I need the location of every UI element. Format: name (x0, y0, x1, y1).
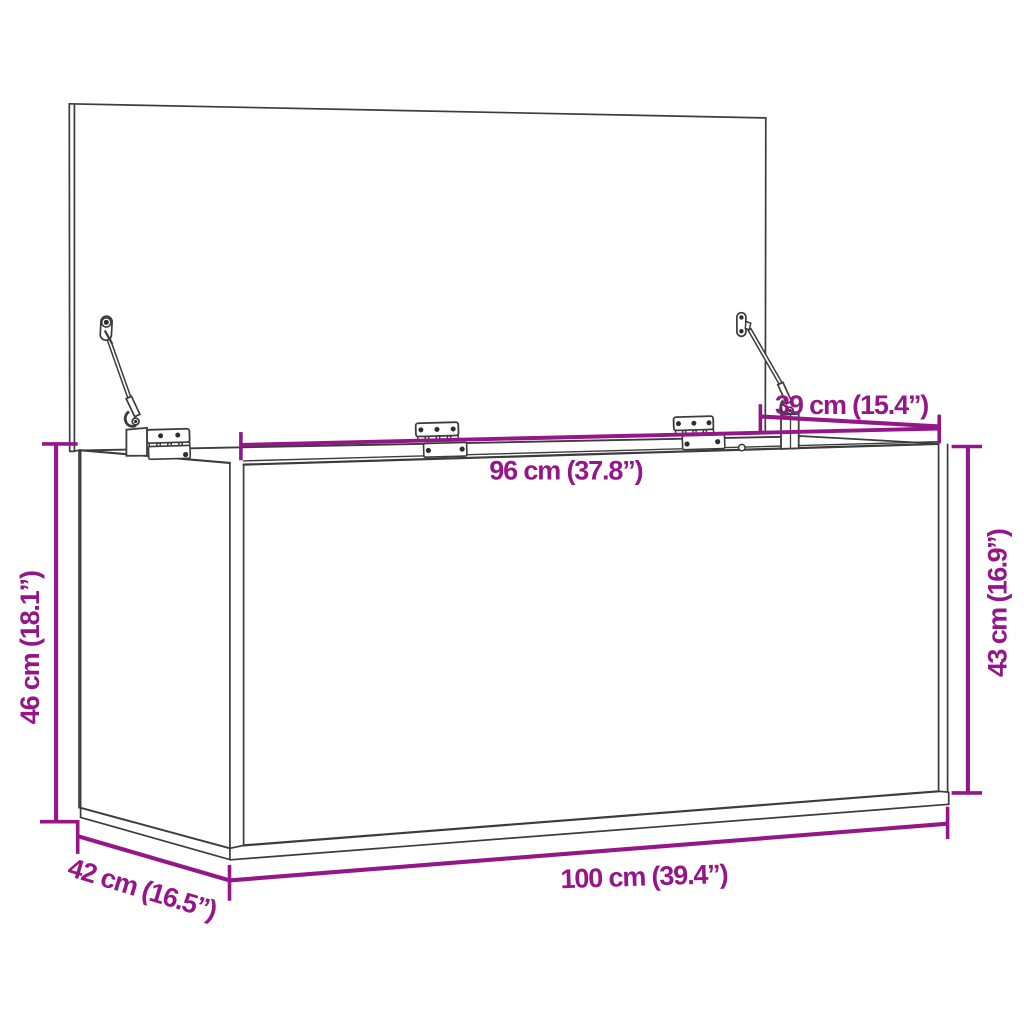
svg-text:39 cm (15.4”): 39 cm (15.4”) (775, 390, 928, 420)
svg-text:96 cm (37.8”): 96 cm (37.8”) (489, 456, 642, 486)
svg-text:100 cm (39.4”): 100 cm (39.4”) (560, 859, 728, 894)
svg-text:43 cm (16.9”): 43 cm (16.9”) (982, 529, 1012, 677)
svg-text:46 cm (18.1”): 46 cm (18.1”) (15, 571, 45, 724)
